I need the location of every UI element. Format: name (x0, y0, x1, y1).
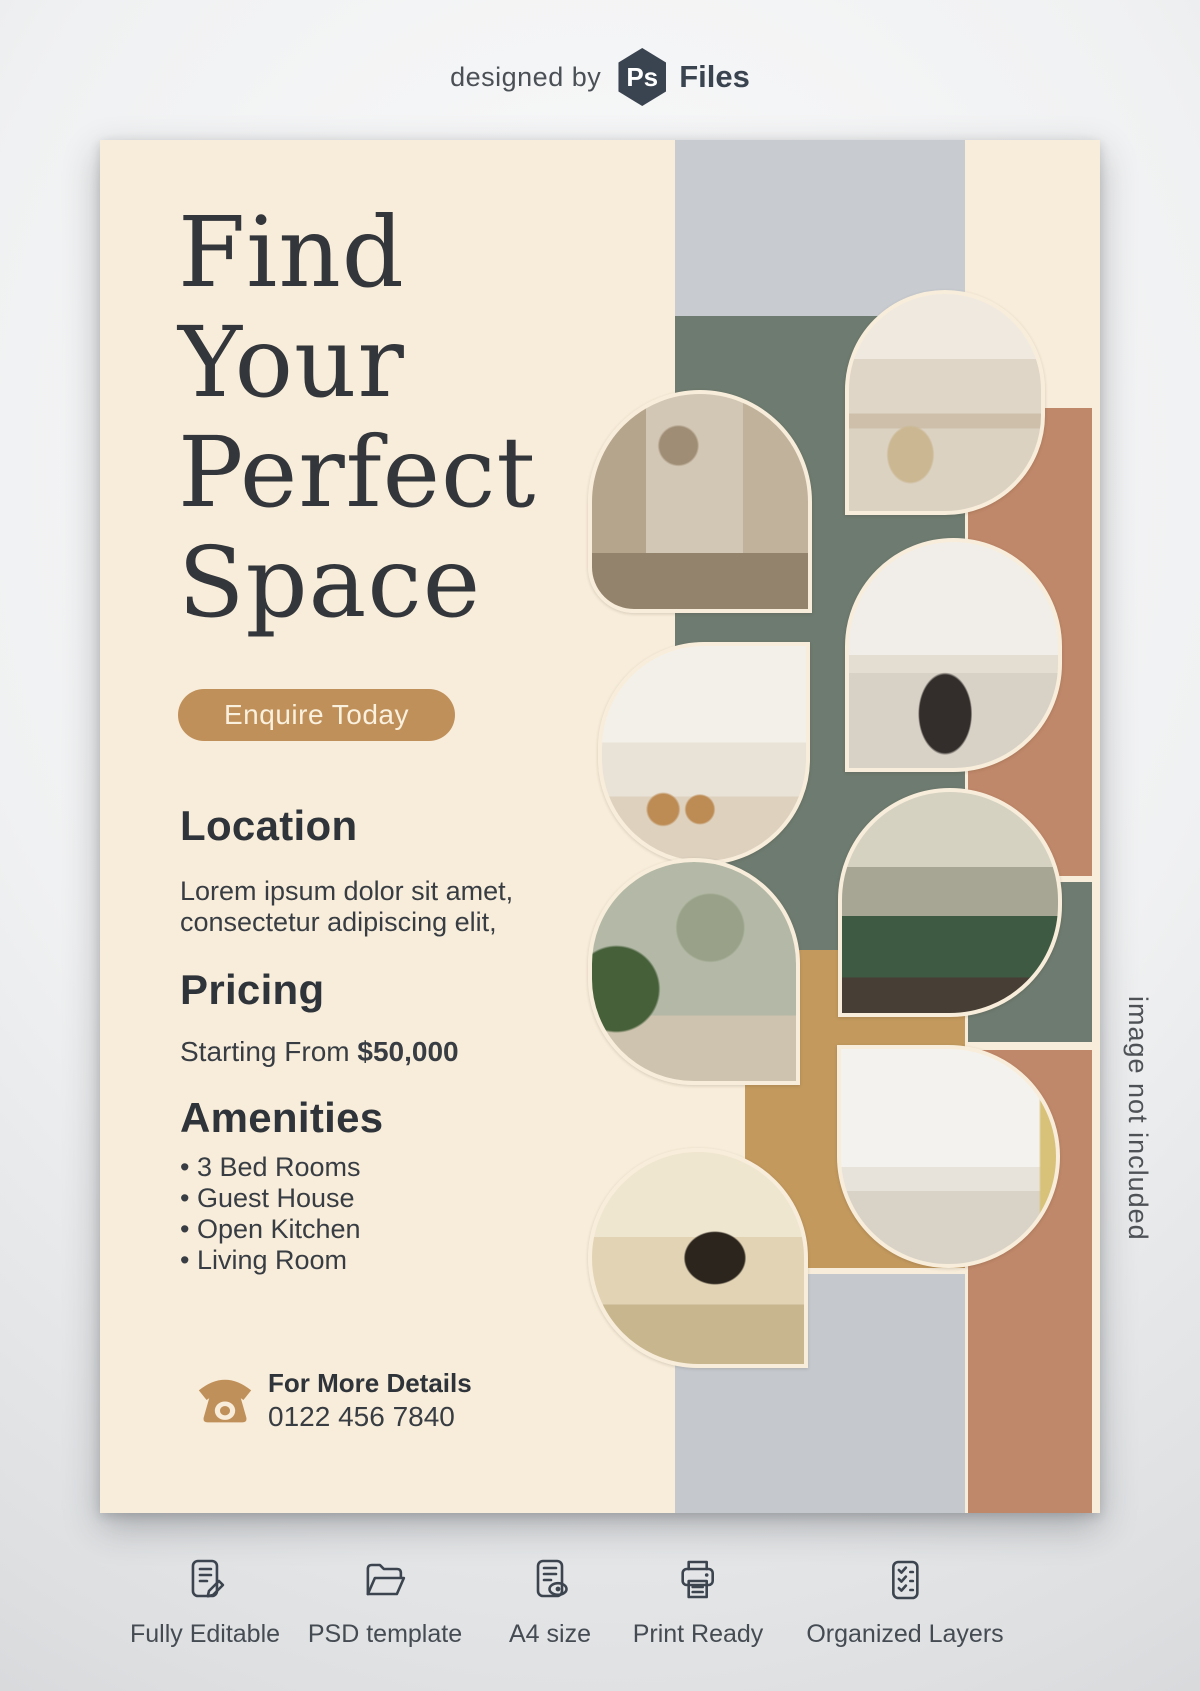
image-not-included-watermark: image not included (1122, 996, 1153, 1241)
feature-organized-layers: Organized Layers (806, 1556, 1003, 1649)
printer-icon (674, 1556, 722, 1604)
feature-a4-size: A4 size (509, 1556, 591, 1649)
flyer-page: Find Your Perfect Space Enquire Today Lo… (100, 140, 1100, 1513)
psfiles-logo-icon: Ps (615, 48, 669, 106)
location-body-line: consectetur adipiscing elit, (180, 907, 513, 938)
amenity-item: Open Kitchen (180, 1214, 361, 1245)
title-line: Perfect (178, 418, 536, 528)
photo-tv-lounge (588, 1148, 808, 1368)
feature-print-ready: Print Ready (633, 1556, 764, 1649)
feature-label: Organized Layers (806, 1620, 1003, 1649)
photo-mirror-console (588, 858, 800, 1085)
feature-label: A4 size (509, 1620, 591, 1649)
photo-curved-white-sofa (845, 290, 1045, 515)
amenities-list: 3 Bed Rooms Guest House Open Kitchen Liv… (180, 1152, 361, 1276)
feature-psd-template: PSD template (308, 1556, 462, 1649)
feature-label: Fully Editable (130, 1620, 280, 1649)
document-edit-icon (181, 1556, 229, 1604)
psfiles-logo-monogram: Ps (626, 62, 658, 93)
location-body: Lorem ipsum dolor sit amet, consectetur … (180, 876, 513, 938)
location-body-line: Lorem ipsum dolor sit amet, (180, 876, 513, 907)
pricing-heading: Pricing (180, 966, 324, 1014)
designed-by-text: designed by (450, 62, 601, 93)
document-preview-icon (526, 1556, 574, 1604)
telephone-icon (194, 1375, 256, 1427)
feature-fully-editable: Fully Editable (130, 1556, 280, 1649)
feature-label: Print Ready (633, 1620, 764, 1649)
pricing-line: Starting From $50,000 (180, 1036, 459, 1067)
contact-heading: For More Details (268, 1368, 472, 1399)
location-heading: Location (180, 802, 357, 850)
psfiles-logo-name: Files (679, 59, 750, 95)
amenity-item: Living Room (180, 1245, 361, 1276)
contact-phone-number: 0122 456 7840 (268, 1401, 472, 1433)
flyer-title: Find Your Perfect Space (178, 198, 536, 638)
title-line: Find (178, 198, 536, 308)
contact-block: For More Details 0122 456 7840 (194, 1368, 472, 1433)
pricing-prefix: Starting From (180, 1036, 350, 1067)
amenities-heading: Amenities (180, 1094, 383, 1142)
title-line: Space (178, 528, 536, 638)
photo-white-sectional (845, 538, 1062, 772)
pricing-value: $50,000 (357, 1036, 458, 1067)
photo-beige-sofa-room (837, 1045, 1060, 1268)
photo-green-sofa-room (838, 788, 1062, 1017)
folder-open-icon (361, 1556, 409, 1604)
photo-living-room-pendant (588, 390, 812, 613)
designed-by-header: designed by Ps Files (0, 48, 1200, 106)
feature-label: PSD template (308, 1620, 462, 1649)
amenity-item: 3 Bed Rooms (180, 1152, 361, 1183)
amenity-item: Guest House (180, 1183, 361, 1214)
checklist-icon (881, 1556, 929, 1604)
enquire-today-button[interactable]: Enquire Today (178, 689, 455, 741)
photo-white-kitchen (598, 642, 810, 865)
panel-gray-top (675, 140, 965, 316)
title-line: Your (178, 308, 536, 418)
